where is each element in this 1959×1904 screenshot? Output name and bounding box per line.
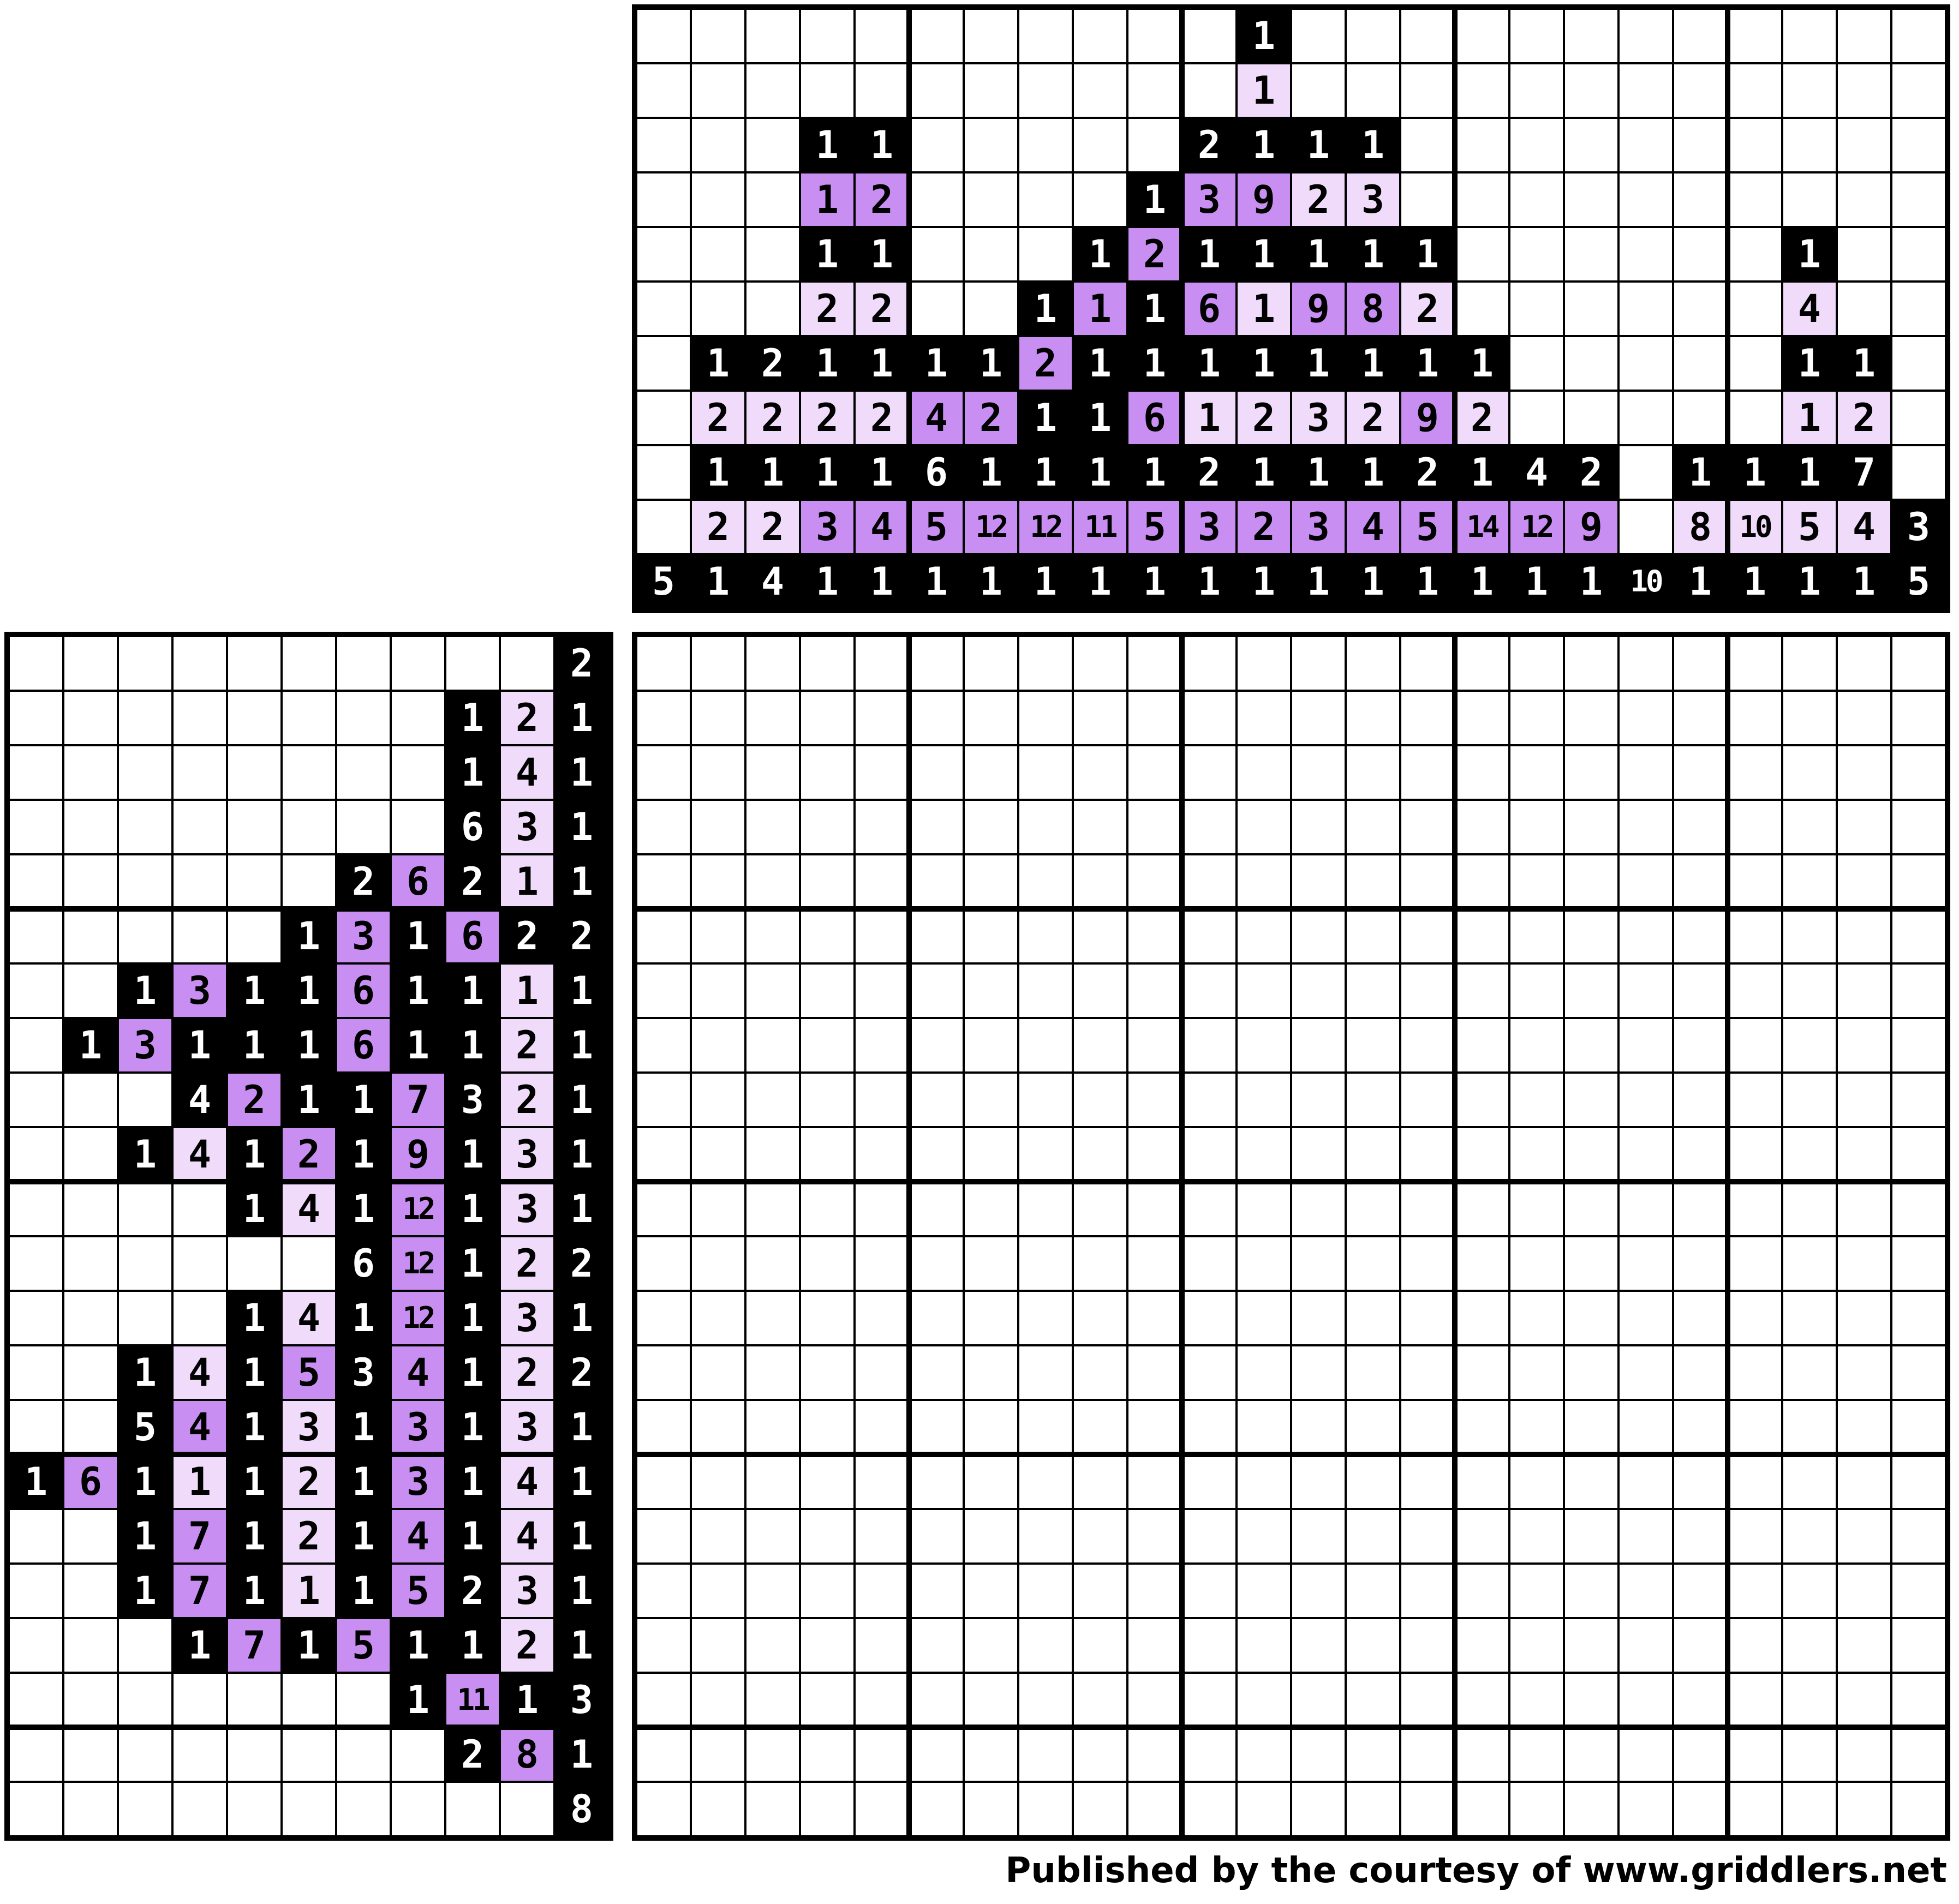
row-clue-cell[interactable]: 2 xyxy=(337,855,390,908)
grid-cell[interactable] xyxy=(965,1128,1017,1181)
grid-cell[interactable] xyxy=(1510,855,1563,908)
grid-cell[interactable] xyxy=(1674,1128,1727,1181)
grid-cell[interactable] xyxy=(1128,692,1181,744)
grid-cell[interactable] xyxy=(1292,746,1345,799)
grid-cell[interactable] xyxy=(910,1346,963,1399)
row-clue-cell[interactable]: 1 xyxy=(228,1565,280,1617)
row-clue-cell[interactable]: 1 xyxy=(228,1346,280,1399)
grid-cell[interactable] xyxy=(1892,1237,1945,1290)
grid-cell[interactable] xyxy=(1128,801,1181,853)
grid-cell[interactable] xyxy=(1674,855,1727,908)
grid-cell[interactable] xyxy=(692,1456,744,1508)
grid-cell[interactable] xyxy=(1892,1183,1945,1235)
grid-cell[interactable] xyxy=(1456,1619,1508,1672)
column-clue-cell[interactable]: 1 xyxy=(1238,119,1290,171)
grid-cell[interactable] xyxy=(1019,1674,1072,1726)
grid-cell[interactable] xyxy=(637,1565,690,1617)
grid-cell[interactable] xyxy=(1401,910,1454,962)
grid-cell[interactable] xyxy=(1620,910,1672,962)
column-clue-cell[interactable]: 4 xyxy=(1783,283,1836,335)
column-clue-cell[interactable]: 12 xyxy=(1510,501,1563,553)
grid-cell[interactable] xyxy=(1510,746,1563,799)
grid-cell[interactable] xyxy=(1128,1019,1181,1071)
row-clue-cell[interactable]: 4 xyxy=(501,1510,553,1562)
row-clue-cell[interactable]: 1 xyxy=(337,1183,390,1235)
grid-cell[interactable] xyxy=(1783,1565,1836,1617)
row-clue-cell[interactable]: 7 xyxy=(392,1074,444,1126)
grid-cell[interactable] xyxy=(1620,965,1672,1017)
grid-cell[interactable] xyxy=(1347,1401,1399,1453)
grid-cell[interactable] xyxy=(1674,1237,1727,1290)
grid-cell[interactable] xyxy=(1238,1074,1290,1126)
column-clue-cell[interactable]: 2 xyxy=(1401,283,1454,335)
column-clue-cell[interactable]: 1 xyxy=(1674,555,1727,608)
grid-cell[interactable] xyxy=(1183,1019,1235,1071)
grid-cell[interactable] xyxy=(1565,1128,1617,1181)
grid-cell[interactable] xyxy=(1183,1565,1235,1617)
grid-cell[interactable] xyxy=(692,801,744,853)
grid-cell[interactable] xyxy=(910,1292,963,1344)
grid-cell[interactable] xyxy=(1674,1074,1727,1126)
column-clue-cell[interactable]: 1 xyxy=(1019,283,1072,335)
grid-cell[interactable] xyxy=(1183,1619,1235,1672)
column-clue-cell[interactable]: 9 xyxy=(1292,283,1345,335)
grid-cell[interactable] xyxy=(637,1237,690,1290)
column-clue-cell[interactable]: 1 xyxy=(1838,555,1890,608)
grid-cell[interactable] xyxy=(1892,1074,1945,1126)
grid-cell[interactable] xyxy=(1620,1619,1672,1672)
row-clue-cell[interactable]: 1 xyxy=(337,1128,390,1181)
grid-cell[interactable] xyxy=(637,910,690,962)
column-clue-cell[interactable]: 1 xyxy=(1347,555,1399,608)
row-clue-cell[interactable]: 1 xyxy=(446,1019,499,1071)
column-clue-cell[interactable]: 4 xyxy=(1347,501,1399,553)
grid-cell[interactable] xyxy=(1401,1128,1454,1181)
row-clue-cell[interactable]: 1 xyxy=(119,1565,171,1617)
row-clue-cell[interactable]: 3 xyxy=(283,1401,335,1453)
row-clue-cell[interactable]: 5 xyxy=(337,1619,390,1672)
grid-cell[interactable] xyxy=(1183,1783,1235,1835)
grid-cell[interactable] xyxy=(965,1237,1017,1290)
grid-cell[interactable] xyxy=(1892,910,1945,962)
row-clue-cell[interactable]: 6 xyxy=(64,1456,117,1508)
column-clue-cell[interactable]: 1 xyxy=(692,446,744,499)
column-clue-cell[interactable]: 9 xyxy=(1401,392,1454,444)
row-clue-cell[interactable]: 1 xyxy=(228,1401,280,1453)
grid-cell[interactable] xyxy=(1729,1510,1781,1562)
grid-cell[interactable] xyxy=(1401,1183,1454,1235)
grid-cell[interactable] xyxy=(692,910,744,962)
column-clue-cell[interactable]: 2 xyxy=(801,283,853,335)
grid-cell[interactable] xyxy=(1183,855,1235,908)
grid-cell[interactable] xyxy=(1238,965,1290,1017)
row-clue-cell[interactable]: 1 xyxy=(446,1456,499,1508)
grid-cell[interactable] xyxy=(1783,1292,1836,1344)
grid-cell[interactable] xyxy=(1292,910,1345,962)
grid-cell[interactable] xyxy=(746,801,799,853)
grid-cell[interactable] xyxy=(1892,965,1945,1017)
grid-cell[interactable] xyxy=(1892,801,1945,853)
grid-cell[interactable] xyxy=(1892,1456,1945,1508)
row-clue-cell[interactable]: 3 xyxy=(392,1456,444,1508)
grid-cell[interactable] xyxy=(746,1183,799,1235)
grid-cell[interactable] xyxy=(1347,1510,1399,1562)
grid-cell[interactable] xyxy=(965,1728,1017,1781)
grid-cell[interactable] xyxy=(1238,1183,1290,1235)
grid-cell[interactable] xyxy=(1238,1456,1290,1508)
row-clue-cell[interactable]: 1 xyxy=(501,855,553,908)
grid-cell[interactable] xyxy=(1565,910,1617,962)
column-clue-cell[interactable]: 1 xyxy=(801,119,853,171)
grid-cell[interactable] xyxy=(1620,1019,1672,1071)
grid-cell[interactable] xyxy=(637,1456,690,1508)
grid-cell[interactable] xyxy=(856,910,908,962)
grid-cell[interactable] xyxy=(1456,1783,1508,1835)
row-clue-cell[interactable]: 1 xyxy=(174,1456,226,1508)
grid-cell[interactable] xyxy=(1565,1019,1617,1071)
row-clue-cell[interactable]: 7 xyxy=(174,1565,226,1617)
column-clue-cell[interactable]: 2 xyxy=(965,392,1017,444)
row-clue-cell[interactable]: 2 xyxy=(446,855,499,908)
column-clue-cell[interactable]: 12 xyxy=(1019,501,1072,553)
row-clue-cell[interactable]: 4 xyxy=(501,1456,553,1508)
row-clue-cell[interactable]: 1 xyxy=(446,1346,499,1399)
grid-cell[interactable] xyxy=(1238,855,1290,908)
column-clue-cell[interactable]: 1 xyxy=(1729,446,1781,499)
grid-cell[interactable] xyxy=(1565,1674,1617,1726)
grid-cell[interactable] xyxy=(1674,1292,1727,1344)
grid-cell[interactable] xyxy=(1674,801,1727,853)
grid-cell[interactable] xyxy=(1183,1510,1235,1562)
grid-cell[interactable] xyxy=(1238,910,1290,962)
column-clue-cell[interactable]: 7 xyxy=(1838,446,1890,499)
grid-cell[interactable] xyxy=(1456,692,1508,744)
grid-cell[interactable] xyxy=(1183,1183,1235,1235)
row-clue-cell[interactable]: 1 xyxy=(228,1183,280,1235)
column-clue-cell[interactable]: 12 xyxy=(965,501,1017,553)
grid-cell[interactable] xyxy=(856,1401,908,1453)
row-clue-cell[interactable]: 11 xyxy=(446,1674,499,1726)
grid-cell[interactable] xyxy=(1620,1183,1672,1235)
grid-cell[interactable] xyxy=(1674,910,1727,962)
row-clue-cell[interactable]: 5 xyxy=(283,1346,335,1399)
grid-cell[interactable] xyxy=(746,692,799,744)
grid-cell[interactable] xyxy=(1401,692,1454,744)
row-clue-cell[interactable]: 1 xyxy=(119,965,171,1017)
row-clue-cell[interactable]: 2 xyxy=(446,1565,499,1617)
grid-cell[interactable] xyxy=(637,692,690,744)
grid-cell[interactable] xyxy=(1292,1237,1345,1290)
column-clue-cell[interactable]: 3 xyxy=(1292,501,1345,553)
grid-cell[interactable] xyxy=(746,1728,799,1781)
grid-cell[interactable] xyxy=(746,1783,799,1835)
grid-cell[interactable] xyxy=(1019,1128,1072,1181)
grid-cell[interactable] xyxy=(1292,1619,1345,1672)
grid-cell[interactable] xyxy=(637,1510,690,1562)
grid-cell[interactable] xyxy=(1401,1346,1454,1399)
column-clue-cell[interactable]: 2 xyxy=(1183,446,1235,499)
grid-cell[interactable] xyxy=(1074,692,1126,744)
row-clue-cell[interactable]: 2 xyxy=(501,1237,553,1290)
column-clue-cell[interactable]: 2 xyxy=(1565,446,1617,499)
column-clue-cell[interactable]: 1 xyxy=(856,228,908,280)
column-clue-cell[interactable]: 1 xyxy=(1292,228,1345,280)
row-clue-cell[interactable]: 1 xyxy=(392,965,444,1017)
grid-cell[interactable] xyxy=(637,1783,690,1835)
row-clue-cell[interactable]: 1 xyxy=(228,1292,280,1344)
grid-cell[interactable] xyxy=(1347,965,1399,1017)
grid-cell[interactable] xyxy=(1783,1237,1836,1290)
grid-cell[interactable] xyxy=(1183,1237,1235,1290)
grid-cell[interactable] xyxy=(1347,1183,1399,1235)
grid-cell[interactable] xyxy=(637,1401,690,1453)
column-clue-cell[interactable]: 6 xyxy=(1183,283,1235,335)
grid-cell[interactable] xyxy=(1783,910,1836,962)
grid-cell[interactable] xyxy=(1783,1401,1836,1453)
grid-cell[interactable] xyxy=(1019,637,1072,690)
grid-cell[interactable] xyxy=(1019,746,1072,799)
grid-cell[interactable] xyxy=(1456,1456,1508,1508)
row-clue-cell[interactable]: 2 xyxy=(501,1074,553,1126)
grid-cell[interactable] xyxy=(1401,1456,1454,1508)
grid-cell[interactable] xyxy=(910,1019,963,1071)
grid-cell[interactable] xyxy=(1620,1128,1672,1181)
grid-cell[interactable] xyxy=(746,1074,799,1126)
grid-cell[interactable] xyxy=(692,965,744,1017)
grid-cell[interactable] xyxy=(1347,1456,1399,1508)
grid-cell[interactable] xyxy=(1347,637,1399,690)
row-clue-cell[interactable]: 1 xyxy=(446,1183,499,1235)
grid-cell[interactable] xyxy=(1238,637,1290,690)
grid-cell[interactable] xyxy=(1238,1674,1290,1726)
column-clue-cell[interactable]: 1 xyxy=(1074,337,1126,390)
grid-cell[interactable] xyxy=(1238,1292,1290,1344)
grid-cell[interactable] xyxy=(1620,801,1672,853)
column-clue-cell[interactable]: 2 xyxy=(692,501,744,553)
grid-cell[interactable] xyxy=(1838,910,1890,962)
grid-cell[interactable] xyxy=(1456,1128,1508,1181)
grid-cell[interactable] xyxy=(692,1674,744,1726)
grid-cell[interactable] xyxy=(1238,801,1290,853)
grid-cell[interactable] xyxy=(1729,1128,1781,1181)
row-clue-cell[interactable]: 4 xyxy=(174,1128,226,1181)
row-clue-cell[interactable]: 4 xyxy=(174,1346,226,1399)
grid-cell[interactable] xyxy=(1074,1128,1126,1181)
column-clue-cell[interactable]: 4 xyxy=(1510,446,1563,499)
grid-cell[interactable] xyxy=(1510,1128,1563,1181)
grid-cell[interactable] xyxy=(1238,1237,1290,1290)
row-clue-cell[interactable]: 1 xyxy=(556,1074,608,1126)
grid-cell[interactable] xyxy=(1510,692,1563,744)
column-clue-cell[interactable]: 1 xyxy=(1783,446,1836,499)
row-clue-cell[interactable]: 1 xyxy=(556,1456,608,1508)
grid-cell[interactable] xyxy=(910,692,963,744)
row-clue-cell[interactable]: 4 xyxy=(392,1510,444,1562)
row-clue-cell[interactable]: 2 xyxy=(283,1510,335,1562)
grid-cell[interactable] xyxy=(965,910,1017,962)
grid-cell[interactable] xyxy=(1674,1783,1727,1835)
grid-cell[interactable] xyxy=(1620,1728,1672,1781)
grid-cell[interactable] xyxy=(965,1783,1017,1835)
grid-cell[interactable] xyxy=(1674,1674,1727,1726)
grid-cell[interactable] xyxy=(1401,1728,1454,1781)
grid-cell[interactable] xyxy=(856,855,908,908)
grid-cell[interactable] xyxy=(1838,746,1890,799)
grid-cell[interactable] xyxy=(1292,1401,1345,1453)
grid-cell[interactable] xyxy=(1128,1456,1181,1508)
grid-cell[interactable] xyxy=(1128,1510,1181,1562)
grid-cell[interactable] xyxy=(1565,801,1617,853)
column-clue-cell[interactable]: 1 xyxy=(1074,228,1126,280)
column-clue-cell[interactable]: 2 xyxy=(1347,392,1399,444)
grid-cell[interactable] xyxy=(1565,1183,1617,1235)
grid-cell[interactable] xyxy=(1401,1783,1454,1835)
grid-cell[interactable] xyxy=(910,855,963,908)
grid-cell[interactable] xyxy=(1620,1074,1672,1126)
grid-cell[interactable] xyxy=(801,1346,853,1399)
grid-cell[interactable] xyxy=(856,1619,908,1672)
column-clue-cell[interactable]: 2 xyxy=(856,173,908,226)
column-clue-cell[interactable]: 1 xyxy=(1456,337,1508,390)
grid-cell[interactable] xyxy=(746,1619,799,1672)
column-clue-cell[interactable]: 4 xyxy=(856,501,908,553)
grid-cell[interactable] xyxy=(1783,746,1836,799)
grid-cell[interactable] xyxy=(1128,1128,1181,1181)
grid-cell[interactable] xyxy=(801,801,853,853)
grid-cell[interactable] xyxy=(1838,1237,1890,1290)
grid-cell[interactable] xyxy=(1729,1346,1781,1399)
grid-cell[interactable] xyxy=(856,1183,908,1235)
grid-cell[interactable] xyxy=(965,1674,1017,1726)
grid-cell[interactable] xyxy=(692,1619,744,1672)
grid-cell[interactable] xyxy=(856,1346,908,1399)
grid-cell[interactable] xyxy=(637,637,690,690)
row-clue-cell[interactable]: 2 xyxy=(501,1346,553,1399)
grid-cell[interactable] xyxy=(1238,1401,1290,1453)
row-clue-cell[interactable]: 4 xyxy=(283,1183,335,1235)
row-clue-cell[interactable]: 3 xyxy=(556,1674,608,1726)
grid-cell[interactable] xyxy=(1783,801,1836,853)
grid-cell[interactable] xyxy=(856,1292,908,1344)
grid-cell[interactable] xyxy=(1729,1728,1781,1781)
grid-cell[interactable] xyxy=(692,1346,744,1399)
grid-cell[interactable] xyxy=(1238,1565,1290,1617)
grid-cell[interactable] xyxy=(1510,1183,1563,1235)
grid-cell[interactable] xyxy=(1783,1728,1836,1781)
grid-cell[interactable] xyxy=(1456,1292,1508,1344)
grid-cell[interactable] xyxy=(1128,1237,1181,1290)
column-clue-cell[interactable]: 1 xyxy=(856,555,908,608)
grid-cell[interactable] xyxy=(1347,1728,1399,1781)
column-clue-cell[interactable]: 1 xyxy=(965,337,1017,390)
row-clue-cell[interactable]: 1 xyxy=(556,965,608,1017)
grid-cell[interactable] xyxy=(1838,855,1890,908)
row-clue-cell[interactable]: 3 xyxy=(501,801,553,853)
grid-cell[interactable] xyxy=(1292,1183,1345,1235)
column-clue-cell[interactable]: 4 xyxy=(1838,501,1890,553)
grid-cell[interactable] xyxy=(1019,801,1072,853)
column-clue-cell[interactable]: 1 xyxy=(801,337,853,390)
column-clue-cell[interactable]: 1 xyxy=(1292,446,1345,499)
row-clue-cell[interactable]: 1 xyxy=(556,1183,608,1235)
column-clue-cell[interactable]: 11 xyxy=(1074,501,1126,553)
row-clue-cell[interactable]: 12 xyxy=(392,1183,444,1235)
column-clue-cell[interactable]: 5 xyxy=(637,555,690,608)
grid-cell[interactable] xyxy=(801,1728,853,1781)
column-clue-cell[interactable]: 9 xyxy=(1238,173,1290,226)
grid-cell[interactable] xyxy=(1729,1674,1781,1726)
grid-cell[interactable] xyxy=(746,1565,799,1617)
row-clue-cell[interactable]: 1 xyxy=(556,855,608,908)
grid-cell[interactable] xyxy=(1238,1783,1290,1835)
grid-cell[interactable] xyxy=(1456,910,1508,962)
grid-cell[interactable] xyxy=(1892,1565,1945,1617)
grid-cell[interactable] xyxy=(856,1237,908,1290)
column-clue-cell[interactable]: 1 xyxy=(1292,555,1345,608)
grid-cell[interactable] xyxy=(1347,801,1399,853)
grid-cell[interactable] xyxy=(1074,1183,1126,1235)
column-clue-cell[interactable]: 5 xyxy=(1401,501,1454,553)
grid-cell[interactable] xyxy=(1783,1074,1836,1126)
row-clue-cell[interactable]: 2 xyxy=(501,1619,553,1672)
grid-cell[interactable] xyxy=(1128,746,1181,799)
grid-cell[interactable] xyxy=(1074,1674,1126,1726)
grid-cell[interactable] xyxy=(746,637,799,690)
row-clue-cell[interactable]: 1 xyxy=(337,1401,390,1453)
grid-cell[interactable] xyxy=(1510,1237,1563,1290)
grid-cell[interactable] xyxy=(910,1728,963,1781)
column-clue-cell[interactable]: 14 xyxy=(1456,501,1508,553)
grid-cell[interactable] xyxy=(1892,1346,1945,1399)
grid-cell[interactable] xyxy=(1510,637,1563,690)
grid-cell[interactable] xyxy=(1238,1346,1290,1399)
grid-cell[interactable] xyxy=(1510,1728,1563,1781)
grid-cell[interactable] xyxy=(1019,1456,1072,1508)
grid-cell[interactable] xyxy=(1347,855,1399,908)
row-clue-cell[interactable]: 1 xyxy=(283,1565,335,1617)
grid-cell[interactable] xyxy=(1510,1565,1563,1617)
grid-cell[interactable] xyxy=(1019,1783,1072,1835)
grid-cell[interactable] xyxy=(1674,1401,1727,1453)
grid-cell[interactable] xyxy=(910,965,963,1017)
column-clue-cell[interactable]: 1 xyxy=(856,119,908,171)
grid-cell[interactable] xyxy=(1074,1783,1126,1835)
column-clue-cell[interactable]: 3 xyxy=(1347,173,1399,226)
row-clue-cell[interactable]: 1 xyxy=(392,1619,444,1672)
grid-cell[interactable] xyxy=(692,1728,744,1781)
grid-cell[interactable] xyxy=(1892,1292,1945,1344)
grid-cell[interactable] xyxy=(910,1674,963,1726)
column-clue-cell[interactable]: 1 xyxy=(1074,283,1126,335)
column-clue-cell[interactable]: 1 xyxy=(1729,555,1781,608)
row-clue-cell[interactable]: 2 xyxy=(501,692,553,744)
grid-cell[interactable] xyxy=(1510,1401,1563,1453)
grid-cell[interactable] xyxy=(1347,1783,1399,1835)
grid-cell[interactable] xyxy=(1674,1565,1727,1617)
grid-cell[interactable] xyxy=(965,855,1017,908)
grid-cell[interactable] xyxy=(1292,1074,1345,1126)
grid-cell[interactable] xyxy=(1892,746,1945,799)
column-clue-cell[interactable]: 1 xyxy=(1019,555,1072,608)
grid-cell[interactable] xyxy=(1456,1074,1508,1126)
grid-cell[interactable] xyxy=(1783,637,1836,690)
grid-cell[interactable] xyxy=(965,1019,1017,1071)
grid-cell[interactable] xyxy=(1401,855,1454,908)
grid-cell[interactable] xyxy=(1838,1019,1890,1071)
grid-cell[interactable] xyxy=(1620,637,1672,690)
column-clue-cell[interactable]: 1 xyxy=(1238,10,1290,62)
row-clue-cell[interactable]: 1 xyxy=(556,746,608,799)
